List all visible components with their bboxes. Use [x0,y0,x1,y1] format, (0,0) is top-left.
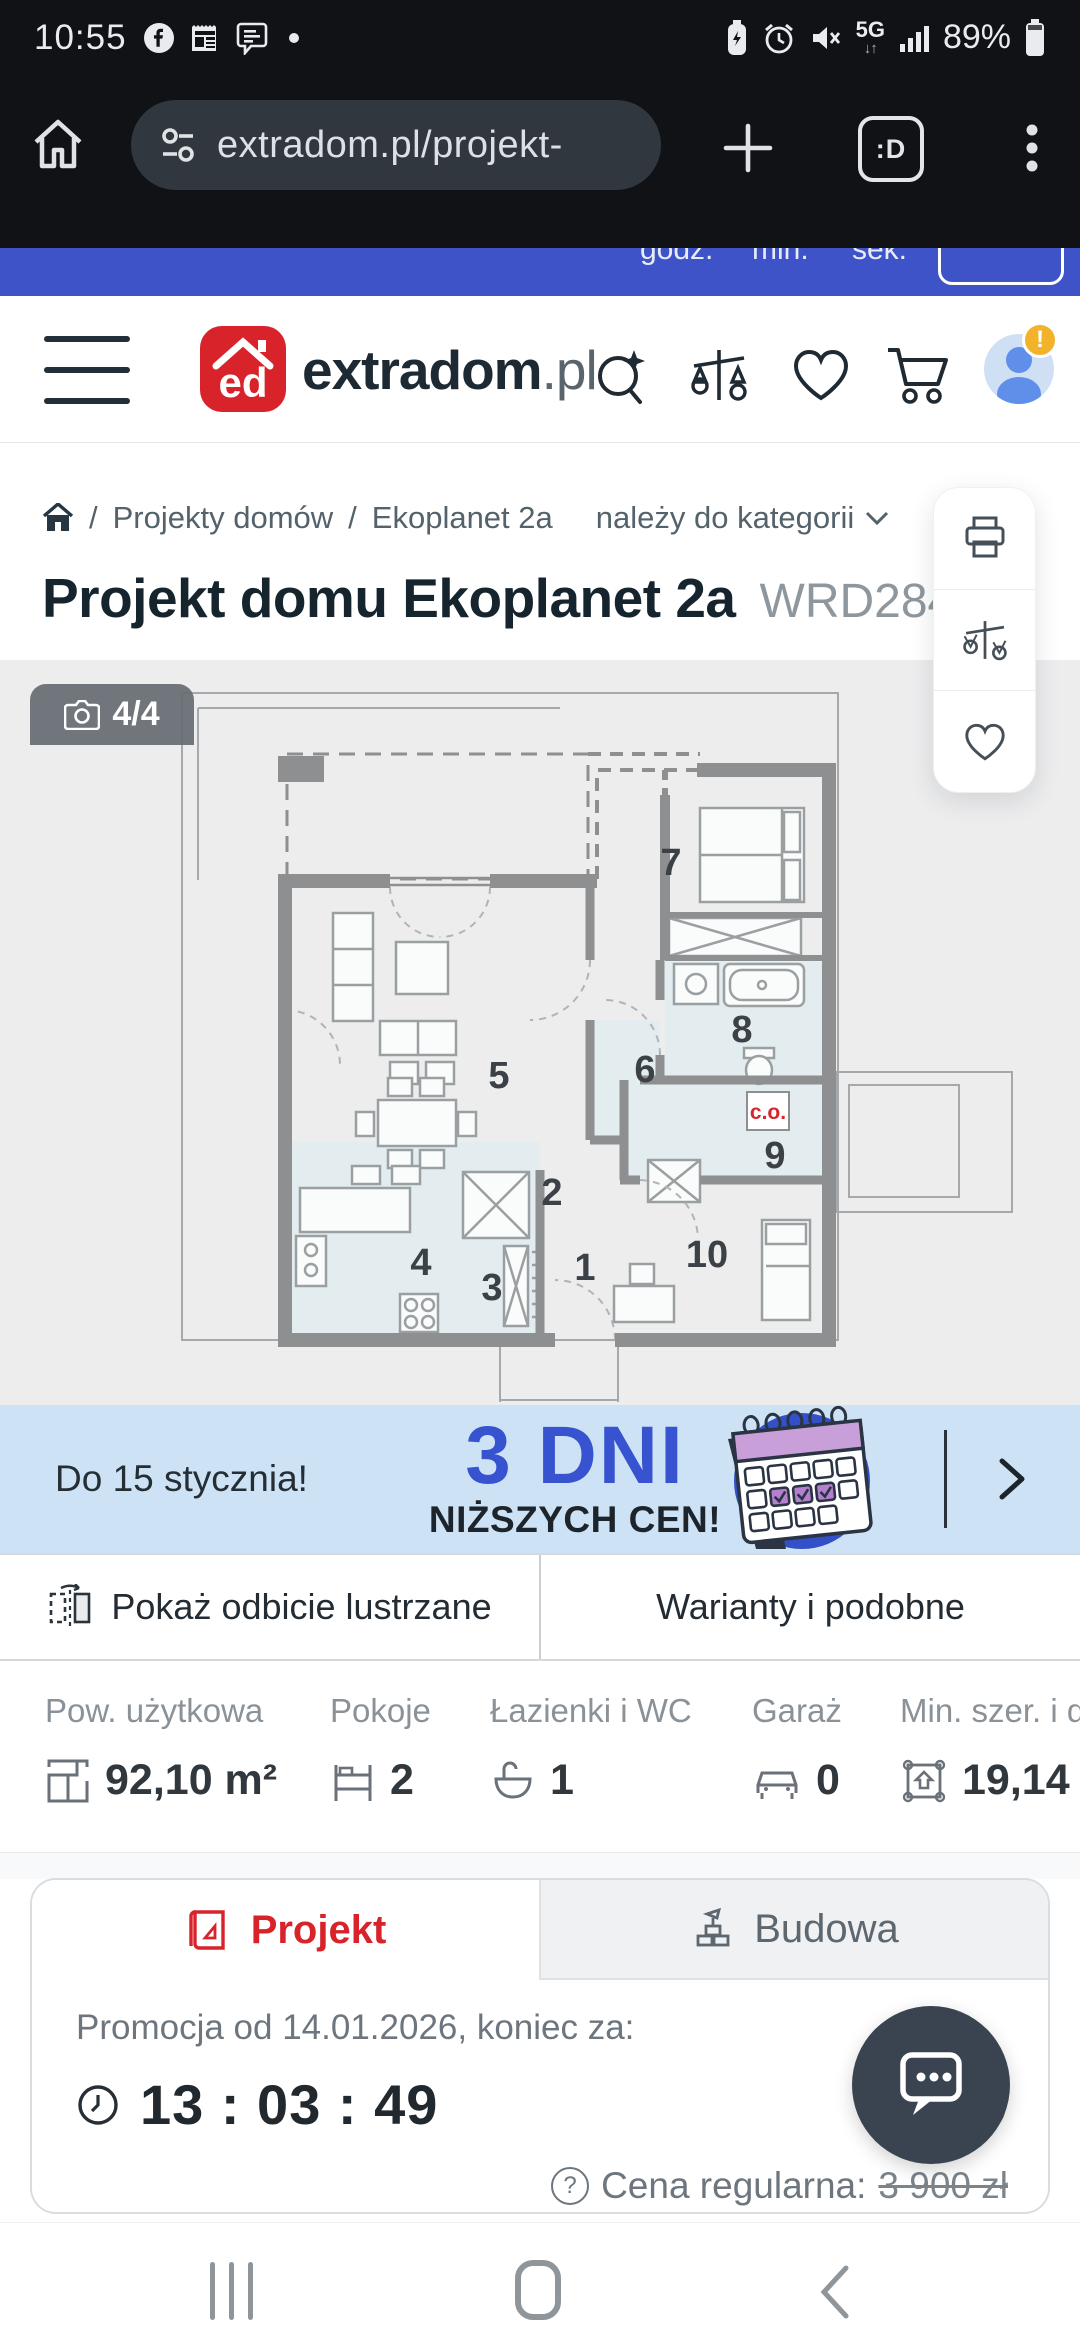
heart-icon [961,718,1009,766]
smart-search-icon[interactable] [588,342,654,408]
bricks-trowel-icon [690,1906,736,1952]
sale-deadline: Do 15 stycznia! [55,1405,308,1553]
battery-percentage: 89% [943,18,1011,57]
account-alert-badge: ! [1022,322,1058,358]
chat-bubble-icon [889,2043,973,2127]
mirror-view-label: Pokaż odbicie lustrzane [111,1586,491,1628]
countdown-strip-button[interactable] [938,248,1064,285]
print-button[interactable] [934,488,1035,589]
new-tab-button[interactable] [718,118,778,178]
page-title: Projekt domu Ekoplanet 2a [42,567,736,629]
browser-home-button[interactable] [26,112,90,176]
room-number-6: 6 [634,1049,655,1091]
logo-wordmark[interactable]: extradom.pl [302,338,597,402]
stat-area: Pow. użytkowa 92,10 m² [45,1692,277,1805]
menu-button[interactable] [44,336,130,404]
tab-switcher-button[interactable]: :D [858,116,924,182]
category-dropdown[interactable]: należy do kategorii [596,500,891,536]
phone-screen: 10:55 5G↓↑ 89% extradom.pl/projek [0,0,1080,2340]
plot-icon [900,1757,948,1805]
car-icon [752,1759,802,1805]
countdown-unit-hours: godz. [640,248,713,267]
banner-divider [944,1430,947,1528]
photo-counter: 4/4 [112,695,159,734]
compare-scales-icon [960,615,1010,665]
tab-build[interactable]: Budowa [539,1880,1048,1980]
breadcrumb-separator: / [89,500,98,536]
clock-time: 10:55 [34,18,127,58]
stat-bathrooms: Łazienki i WC 1 [490,1692,692,1805]
tab-count: :D [876,134,907,165]
room-number-8: 8 [731,1009,752,1051]
browser-menu-button[interactable] [1002,118,1062,178]
android-status-area: 10:55 5G↓↑ 89% extradom.pl/projek [0,0,1080,248]
breadcrumb-home-icon[interactable] [42,503,74,533]
room-number-5: 5 [488,1055,509,1097]
room-number-7: 7 [660,842,681,884]
network-type-indicator: 5G↓↑ [856,19,885,56]
variants-label: Warianty i podobne [656,1586,965,1628]
floating-action-panel [933,487,1036,793]
chevron-down-icon [864,509,890,527]
favorite-button[interactable] [934,690,1035,792]
compare-scales-icon[interactable] [686,342,752,408]
browser-toolbar: extradom.pl/projekt- :D [0,86,1080,216]
extradom-logo[interactable]: ed [200,326,286,412]
bed-icon [330,1759,376,1805]
co-label: c.o. [750,1101,786,1124]
bathtub-icon [490,1759,536,1805]
room-number-1: 1 [574,1247,595,1289]
floorplan-drawing: c.o. 1 2 3 4 5 6 7 8 9 10 [0,660,1080,1405]
promo-countdown: 13 : 03 : 49 [140,2072,438,2137]
signal-bars-icon [898,22,930,54]
breadcrumb-current: Ekoplanet 2a [372,500,553,536]
breadcrumb-separator: / [348,500,357,536]
cart-icon[interactable] [884,342,954,408]
banner-next-arrow[interactable] [992,1455,1032,1503]
printer-icon [961,514,1009,562]
back-button[interactable] [812,2262,856,2322]
plan-action-row: Pokaż odbicie lustrzane Warianty i podob… [0,1553,1080,1661]
news-notification-icon [189,22,221,54]
price-help-icon[interactable]: ? [551,2167,589,2205]
sale-banner[interactable]: Do 15 stycznia! 3 DNI NIŻSZYCH CEN! [0,1405,1080,1553]
regular-price-label: Cena regularna: [601,2165,866,2207]
regular-price-value: 3 900 zł [878,2165,1008,2207]
calendar-illustration [690,1405,900,1553]
camera-icon [64,700,100,730]
project-code: WRD284 [760,575,955,628]
room-number-2: 2 [541,1172,562,1214]
chat-button[interactable] [852,2006,1010,2164]
floor-area-icon [45,1757,91,1805]
recents-button[interactable] [210,2262,253,2320]
site-settings-icon[interactable] [157,124,199,166]
url-bar[interactable]: extradom.pl/projekt- [131,100,661,190]
blueprint-icon [185,1906,233,1954]
status-bar: 10:55 5G↓↑ 89% [0,0,1080,75]
room-number-10: 10 [686,1234,728,1276]
room-number-9: 9 [764,1135,785,1177]
variants-button[interactable]: Warianty i podobne [539,1555,1080,1659]
tab-build-label: Budowa [754,1907,899,1952]
floorplan-image[interactable]: c.o. 1 2 3 4 5 6 7 8 9 10 [0,660,1080,1405]
alarm-icon [762,21,796,55]
section-divider [0,1852,1080,1879]
countdown-unit-seconds: sek. [852,248,907,267]
breadcrumb: / Projekty domów / Ekoplanet 2a należy d… [0,488,1080,548]
room-number-3: 3 [481,1267,502,1309]
mirror-view-button[interactable]: Pokaż odbicie lustrzane [0,1555,539,1659]
mute-icon [809,21,843,55]
notification-dot-icon [289,33,299,43]
battery-saver-icon [725,20,749,56]
battery-icon [1024,19,1046,57]
compare-button[interactable] [934,589,1035,691]
mirror-flip-icon [47,1584,93,1630]
room-number-4: 4 [410,1242,431,1284]
stat-garage: Garaż 0 [752,1692,842,1805]
home-button[interactable] [515,2260,561,2320]
countdown-unit-minutes: min. [752,248,809,267]
stat-plot-size: Min. szer. i dł 19,14 x [900,1692,1080,1805]
sale-countdown-strip[interactable]: godz. min. sek. [0,248,1080,296]
stat-rooms: Pokoje 2 [330,1692,431,1805]
photo-counter-badge[interactable]: 4/4 [30,684,194,745]
tab-project-label: Projekt [251,1908,387,1953]
facebook-notification-icon [143,22,175,54]
chat-notification-icon [235,21,269,55]
clock-icon [76,2083,120,2127]
url-text[interactable]: extradom.pl/projekt- [217,124,563,167]
tab-project[interactable]: Projekt [32,1880,539,1980]
favorites-heart-icon[interactable] [788,342,854,408]
page-title-row: Projekt domu Ekoplanet 2aWRD284 [42,566,1080,630]
logo-roof-icon [212,336,274,370]
breadcrumb-link-projects[interactable]: Projekty domów [113,500,334,536]
